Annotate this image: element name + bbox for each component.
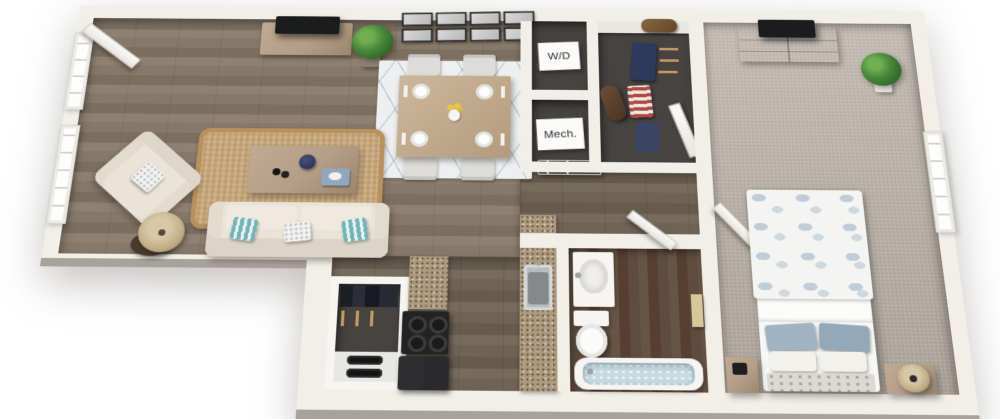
napkin [501, 133, 505, 145]
blue-pillow [819, 323, 870, 353]
floral-duvet [746, 190, 873, 300]
picture-frame [436, 12, 467, 26]
napkin [401, 133, 405, 145]
render-shadow-wrap: W/D Mech. [0, 0, 1000, 419]
teal-pillow [229, 217, 259, 242]
laundry-label-card: W/D [538, 42, 581, 71]
hanging-coats [340, 286, 399, 307]
vanity-sink [579, 259, 608, 293]
yellow-flowers-icon [445, 102, 465, 112]
wood-hanger [660, 59, 679, 62]
tv-icon [275, 16, 340, 34]
duffel-bag [641, 19, 677, 33]
wood-hanger [659, 48, 678, 51]
sink-basin [528, 272, 549, 304]
wood-hanger [658, 71, 677, 74]
dining-chair [407, 54, 440, 76]
vanity-faucet [575, 272, 581, 278]
sheet-fold [757, 299, 873, 323]
refrigerator [397, 356, 449, 390]
shoes-pair [347, 356, 383, 365]
tub-faucet [587, 368, 593, 374]
mechanical-label-card: Mech. [536, 118, 585, 151]
picture-frame [436, 28, 467, 42]
mechanical-label: Mech. [543, 127, 577, 140]
hanging-clothes-navy-2 [635, 122, 661, 153]
white-pillow [769, 351, 817, 371]
napkin [501, 86, 505, 98]
white-pillow [819, 352, 867, 372]
picture-frame [402, 28, 433, 42]
shoes-pair [346, 369, 382, 378]
closet-south-wall [520, 161, 696, 173]
picture-frame [402, 13, 433, 27]
place-setting-plate [476, 84, 494, 99]
napkin [403, 85, 407, 97]
bedroom-tv-icon [758, 20, 816, 38]
closet-west-wall [520, 21, 532, 172]
toilet-bowl [576, 324, 608, 358]
laundry-label: W/D [547, 50, 571, 62]
gallery-wall-frames [402, 11, 537, 42]
lamp-top [909, 375, 917, 382]
clock-device [732, 363, 748, 375]
hanging-clothes-navy [630, 42, 657, 82]
dining-chair [460, 157, 494, 180]
closet-divider-wall [532, 90, 588, 100]
blue-pillow [764, 322, 818, 351]
hanging-clothes-striped [627, 85, 654, 118]
patterned-throw [766, 373, 876, 392]
picture-frame [470, 12, 501, 26]
white-pillow [283, 221, 311, 243]
apartment-scene: W/D Mech. [16, 5, 981, 419]
floor-plan-render: W/D Mech. [0, 0, 1000, 419]
picture-frame [470, 27, 501, 41]
towel [691, 294, 704, 327]
teal-pillow [341, 217, 369, 242]
bathtub-water [583, 362, 696, 385]
dining-chair [463, 55, 496, 77]
place-setting-plate [475, 132, 493, 148]
hall-south-wall-west [520, 233, 611, 248]
sink-faucet [536, 261, 541, 266]
living-south-wall-face [40, 258, 307, 269]
dining-chair [403, 157, 437, 180]
kitchen-counter-left [408, 256, 449, 309]
